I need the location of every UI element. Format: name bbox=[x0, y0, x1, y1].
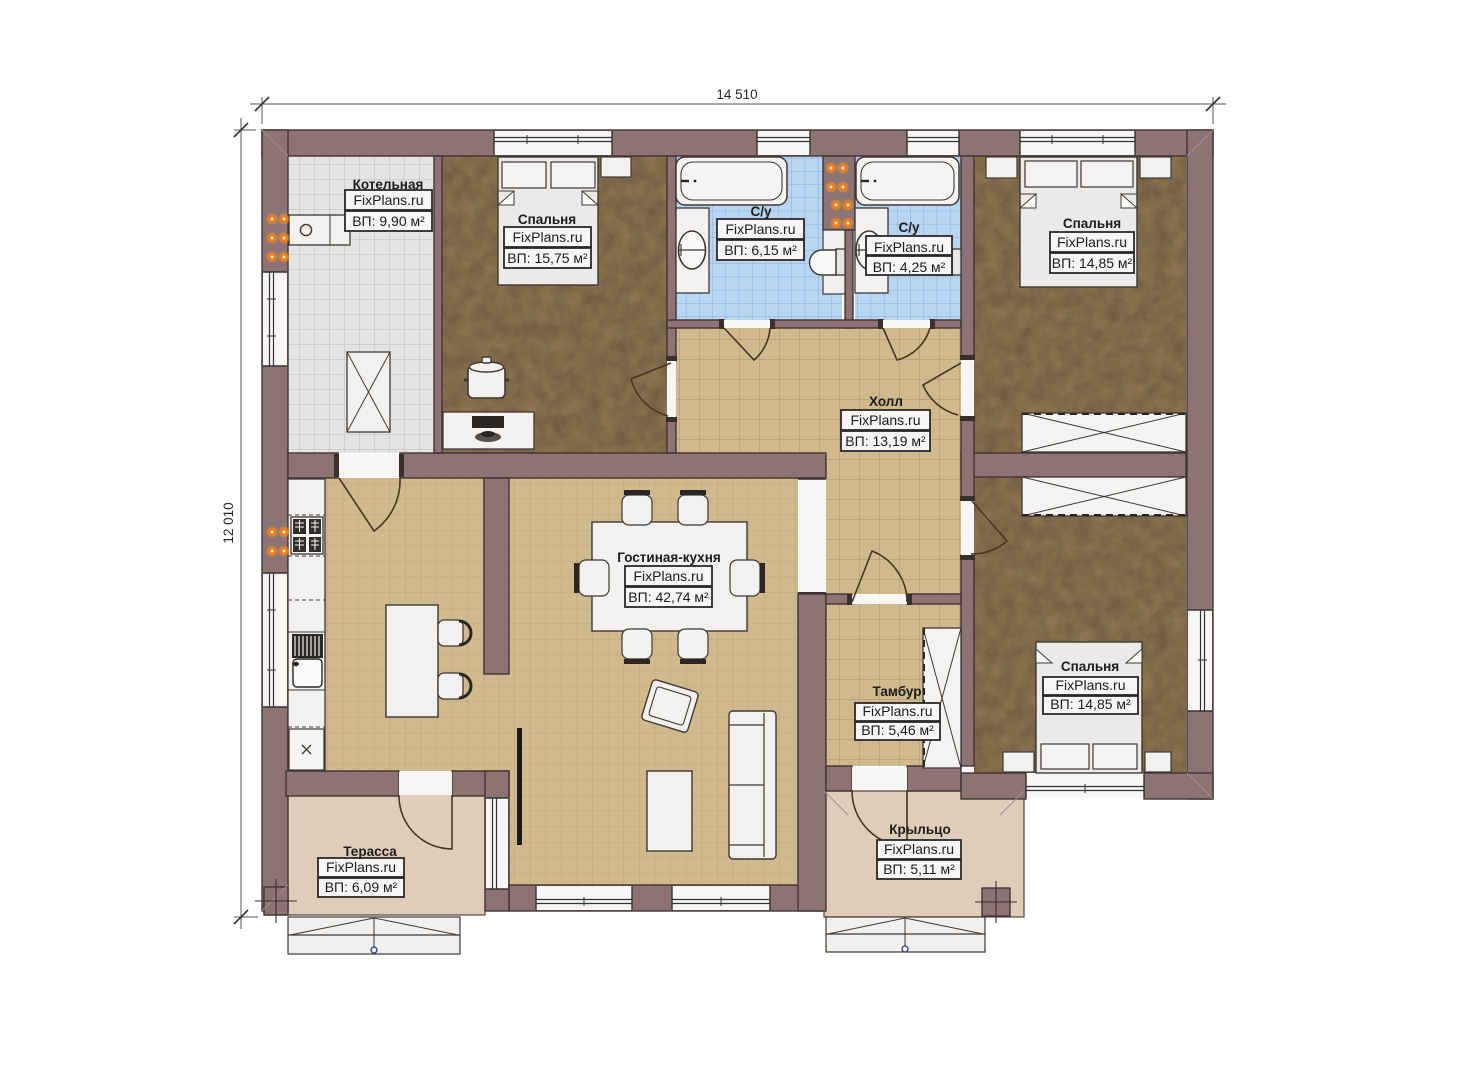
svg-text:FixPlans.ru: FixPlans.ru bbox=[512, 229, 582, 245]
svg-text:Гостиная-кухня: Гостиная-кухня bbox=[617, 550, 720, 565]
svg-text:FixPlans.ru: FixPlans.ru bbox=[353, 192, 423, 208]
svg-text:Терасса: Терасса bbox=[343, 844, 397, 859]
svg-text:14 510: 14 510 bbox=[716, 87, 757, 102]
svg-text:FixPlans.ru: FixPlans.ru bbox=[862, 703, 932, 719]
svg-text:FixPlans.ru: FixPlans.ru bbox=[1055, 677, 1125, 693]
svg-text:ВП: 6,15 м²: ВП: 6,15 м² bbox=[724, 242, 797, 258]
svg-text:FixPlans.ru: FixPlans.ru bbox=[874, 239, 944, 255]
svg-text:ВП: 9,90 м²: ВП: 9,90 м² bbox=[352, 213, 425, 229]
svg-text:Холл: Холл bbox=[869, 394, 903, 409]
svg-text:FixPlans.ru: FixPlans.ru bbox=[884, 841, 954, 857]
svg-text:ВП: 42,74 м²: ВП: 42,74 м² bbox=[628, 589, 709, 605]
svg-text:С/у: С/у bbox=[750, 204, 772, 219]
svg-text:Крыльцо: Крыльцо bbox=[889, 822, 950, 837]
svg-text:С/у: С/у bbox=[898, 220, 920, 235]
svg-text:ВП: 15,75 м²: ВП: 15,75 м² bbox=[507, 250, 588, 266]
svg-text:ВП: 5,46 м²: ВП: 5,46 м² bbox=[861, 722, 934, 738]
svg-text:ВП: 4,25 м²: ВП: 4,25 м² bbox=[873, 259, 946, 275]
svg-text:12 010: 12 010 bbox=[221, 502, 236, 543]
svg-text:FixPlans.ru: FixPlans.ru bbox=[326, 859, 396, 875]
svg-text:ВП: 14,85 м²: ВП: 14,85 м² bbox=[1052, 255, 1133, 271]
svg-text:FixPlans.ru: FixPlans.ru bbox=[633, 568, 703, 584]
svg-text:Спальня: Спальня bbox=[1061, 659, 1119, 674]
svg-text:ВП: 14,85 м²: ВП: 14,85 м² bbox=[1050, 696, 1131, 712]
svg-text:ВП: 13,19 м²: ВП: 13,19 м² bbox=[845, 433, 926, 449]
svg-text:ВП: 6,09 м²: ВП: 6,09 м² bbox=[325, 879, 398, 895]
svg-text:Спальня: Спальня bbox=[518, 212, 576, 227]
svg-text:ВП: 5,11 м²: ВП: 5,11 м² bbox=[883, 861, 955, 877]
svg-text:FixPlans.ru: FixPlans.ru bbox=[1057, 234, 1127, 250]
svg-text:FixPlans.ru: FixPlans.ru bbox=[850, 412, 920, 428]
svg-text:Спальня: Спальня bbox=[1063, 216, 1121, 231]
svg-text:Котельная: Котельная bbox=[353, 177, 424, 192]
svg-text:Тамбур: Тамбур bbox=[873, 684, 922, 699]
svg-text:FixPlans.ru: FixPlans.ru bbox=[725, 221, 795, 237]
